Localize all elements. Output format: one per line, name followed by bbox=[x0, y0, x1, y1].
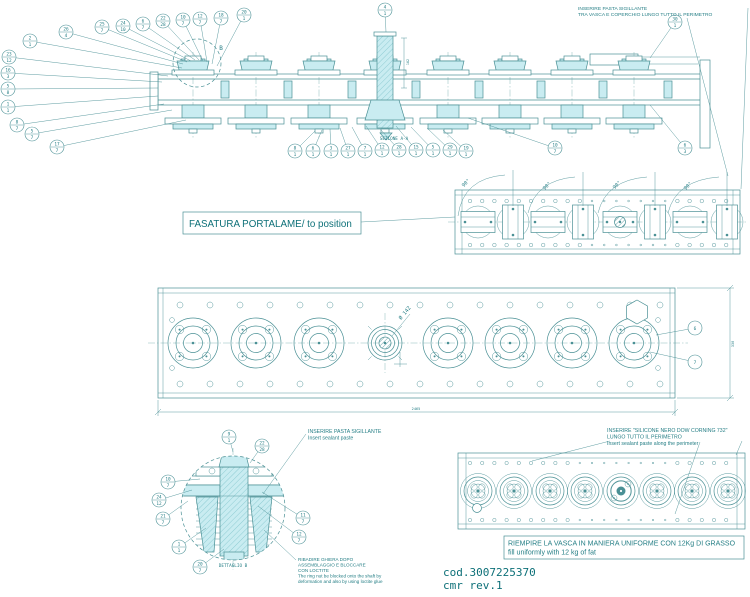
note-grease-line1: RIEMPIRE LA VASCA IN MANIERA UNIFORME CO… bbox=[508, 541, 736, 548]
balloon: 271 bbox=[340, 128, 355, 158]
svg-text:5: 5 bbox=[7, 83, 10, 89]
balloon: 57 bbox=[25, 110, 172, 141]
svg-text:7: 7 bbox=[199, 20, 202, 26]
note-silicone-line1: INSERIRE "SILICONE NERO DOW CORNING 732" bbox=[607, 428, 728, 434]
svg-text:7: 7 bbox=[142, 25, 145, 31]
svg-text:22: 22 bbox=[160, 15, 166, 21]
svg-text:4: 4 bbox=[65, 33, 68, 39]
svg-text:7: 7 bbox=[220, 19, 223, 25]
svg-text:1: 1 bbox=[29, 42, 32, 48]
svg-text:7: 7 bbox=[554, 149, 557, 155]
svg-text:3: 3 bbox=[684, 149, 687, 155]
svg-text:1: 1 bbox=[347, 152, 350, 158]
svg-text:3: 3 bbox=[7, 74, 10, 80]
svg-text:1: 1 bbox=[7, 101, 10, 107]
note-seal-detail-line1: INSERIRE PASTA SIGILLANTE bbox=[308, 429, 382, 435]
dimension-label: SEZIONE A-A bbox=[380, 136, 409, 142]
svg-text:7: 7 bbox=[182, 21, 185, 27]
note-silicone-line3: Insert sealant paste along the perimeter bbox=[607, 441, 699, 447]
svg-text:26: 26 bbox=[63, 26, 69, 32]
balloon: 177 bbox=[50, 120, 186, 154]
svg-text:27: 27 bbox=[345, 145, 351, 151]
svg-text:1: 1 bbox=[415, 151, 418, 157]
dimension-label: DETTAGLIO B bbox=[219, 563, 248, 569]
svg-text:7: 7 bbox=[199, 568, 202, 574]
svg-text:1: 1 bbox=[330, 152, 333, 158]
svg-text:3: 3 bbox=[330, 145, 333, 151]
svg-text:1: 1 bbox=[7, 108, 10, 114]
svg-text:24: 24 bbox=[156, 494, 162, 500]
svg-text:7: 7 bbox=[302, 519, 305, 525]
svg-text:28: 28 bbox=[259, 447, 265, 453]
svg-text:9: 9 bbox=[228, 431, 231, 437]
svg-text:20: 20 bbox=[241, 9, 247, 15]
svg-text:12: 12 bbox=[379, 144, 385, 150]
note-grease-line2: fill uniformly with 12 kg of fat bbox=[508, 550, 596, 557]
svg-text:19: 19 bbox=[463, 145, 469, 151]
svg-text:24: 24 bbox=[120, 20, 126, 26]
svg-text:15: 15 bbox=[413, 144, 419, 150]
svg-text:1: 1 bbox=[312, 152, 315, 158]
svg-text:4: 4 bbox=[384, 4, 387, 10]
svg-text:1: 1 bbox=[384, 11, 387, 17]
cad-drawing: 2123121635811875717726425724106722281071… bbox=[0, 0, 750, 597]
detail-b-view bbox=[178, 434, 306, 570]
svg-text:1: 1 bbox=[449, 151, 452, 157]
svg-text:7: 7 bbox=[694, 360, 697, 366]
note-silicone-line2: LUNGO TUTTO IL PERIMETRO bbox=[607, 435, 682, 441]
svg-text:10: 10 bbox=[552, 142, 558, 148]
svg-text:12: 12 bbox=[156, 501, 162, 507]
note-ring-nut-line1: RIBADIRE GHIERA DOPO bbox=[298, 557, 354, 562]
svg-text:1: 1 bbox=[465, 152, 468, 158]
svg-text:28: 28 bbox=[396, 144, 402, 150]
svg-text:6: 6 bbox=[694, 326, 697, 332]
section-view bbox=[150, 8, 748, 189]
note-ring-nut-line3: CON LOCTITE bbox=[298, 568, 329, 573]
svg-text:8: 8 bbox=[7, 90, 10, 96]
dimension-label: 90° bbox=[612, 180, 623, 191]
note-seal-detail-line2: Insert sealant paste bbox=[308, 436, 353, 442]
svg-text:11: 11 bbox=[300, 512, 306, 518]
note-seal-top-line2: TRA VASCA E COPERCHIO LUNGO TUTTO IL PER… bbox=[578, 12, 713, 18]
balloon: 187 bbox=[212, 11, 228, 64]
svg-text:2: 2 bbox=[29, 35, 32, 41]
svg-text:1: 1 bbox=[381, 151, 384, 157]
drawing-revision: cmr rev.1 bbox=[443, 579, 503, 592]
svg-text:16: 16 bbox=[5, 67, 11, 73]
svg-text:10: 10 bbox=[165, 476, 171, 482]
balloon: 31 bbox=[324, 129, 338, 158]
svg-text:7: 7 bbox=[16, 126, 19, 132]
svg-text:6: 6 bbox=[142, 18, 145, 24]
plan-view bbox=[148, 285, 734, 416]
svg-text:1: 1 bbox=[398, 151, 401, 157]
svg-text:7: 7 bbox=[364, 145, 367, 151]
svg-text:1: 1 bbox=[243, 16, 246, 22]
balloon: 71 bbox=[352, 127, 372, 158]
svg-text:10: 10 bbox=[120, 27, 126, 33]
svg-text:1: 1 bbox=[228, 438, 231, 444]
balloon: 2228 bbox=[250, 439, 269, 463]
balloon: 58 bbox=[1, 82, 158, 96]
dimension-label: B bbox=[219, 45, 223, 52]
svg-text:25: 25 bbox=[99, 21, 105, 27]
svg-text:8: 8 bbox=[16, 119, 19, 125]
balloon: 11 bbox=[1, 96, 158, 114]
generated-linework: 2123121635811875717726425724106722281071… bbox=[1, 3, 748, 574]
svg-text:18: 18 bbox=[218, 12, 224, 18]
svg-text:1: 1 bbox=[294, 152, 297, 158]
svg-text:6: 6 bbox=[312, 145, 315, 151]
balloon: 207 bbox=[193, 549, 224, 574]
dimension-label: 90° bbox=[461, 178, 472, 189]
balloon: 21 bbox=[23, 34, 182, 68]
svg-text:1: 1 bbox=[432, 151, 435, 157]
balloon: 91 bbox=[222, 430, 236, 452]
svg-text:7: 7 bbox=[56, 148, 59, 154]
svg-text:12: 12 bbox=[197, 13, 203, 19]
label-fasatura-portalame: FASATURA PORTALAME/ to position bbox=[189, 219, 352, 230]
balloon: 41 bbox=[378, 3, 392, 32]
svg-text:7: 7 bbox=[162, 520, 165, 526]
svg-text:7: 7 bbox=[298, 538, 301, 544]
svg-text:17: 17 bbox=[54, 141, 60, 147]
svg-text:22: 22 bbox=[259, 440, 265, 446]
dimension-label: 162 bbox=[406, 59, 410, 65]
balloon: 163 bbox=[1, 66, 162, 82]
note-seal-top-line1: INSERIRE PASTA SIGILLANTE bbox=[578, 6, 648, 12]
drawing-code: cod.3007225370 bbox=[443, 566, 536, 579]
svg-text:7: 7 bbox=[101, 28, 104, 34]
svg-text:5: 5 bbox=[31, 128, 34, 134]
dimension-label: 330 bbox=[731, 341, 735, 348]
svg-text:10: 10 bbox=[180, 14, 186, 20]
svg-text:23: 23 bbox=[6, 51, 12, 57]
drawing-canvas: 2123121635811875717726425724106722281071… bbox=[0, 0, 750, 597]
note-ring-nut-line5: deformation and also by using loctite gl… bbox=[298, 579, 383, 584]
svg-text:12: 12 bbox=[6, 58, 12, 64]
balloon: 2312 bbox=[2, 50, 168, 76]
svg-text:1: 1 bbox=[178, 541, 181, 547]
svg-text:21: 21 bbox=[160, 513, 166, 519]
svg-text:7: 7 bbox=[31, 135, 34, 141]
svg-text:28: 28 bbox=[160, 22, 166, 28]
svg-text:1: 1 bbox=[364, 152, 367, 158]
bottom-view bbox=[458, 441, 746, 529]
balloon: 61 bbox=[306, 130, 322, 158]
note-ring-nut-line2: ASSEMBLAGGIO E BLOCCARE bbox=[298, 563, 366, 568]
note-ring-nut-line4: The ring nut be blocked onto the shaft b… bbox=[298, 574, 382, 579]
svg-text:6: 6 bbox=[684, 142, 687, 148]
dimension-label: 2465 bbox=[412, 407, 421, 411]
balloon: 63 bbox=[650, 105, 692, 155]
svg-text:1: 1 bbox=[674, 23, 677, 29]
svg-text:29: 29 bbox=[447, 144, 453, 150]
balloon: 301 bbox=[650, 15, 682, 58]
svg-text:7: 7 bbox=[167, 483, 170, 489]
svg-text:20: 20 bbox=[197, 561, 203, 567]
svg-text:12: 12 bbox=[296, 531, 302, 537]
svg-text:1: 1 bbox=[178, 548, 181, 554]
svg-text:5: 5 bbox=[432, 144, 435, 150]
svg-text:8: 8 bbox=[294, 145, 297, 151]
